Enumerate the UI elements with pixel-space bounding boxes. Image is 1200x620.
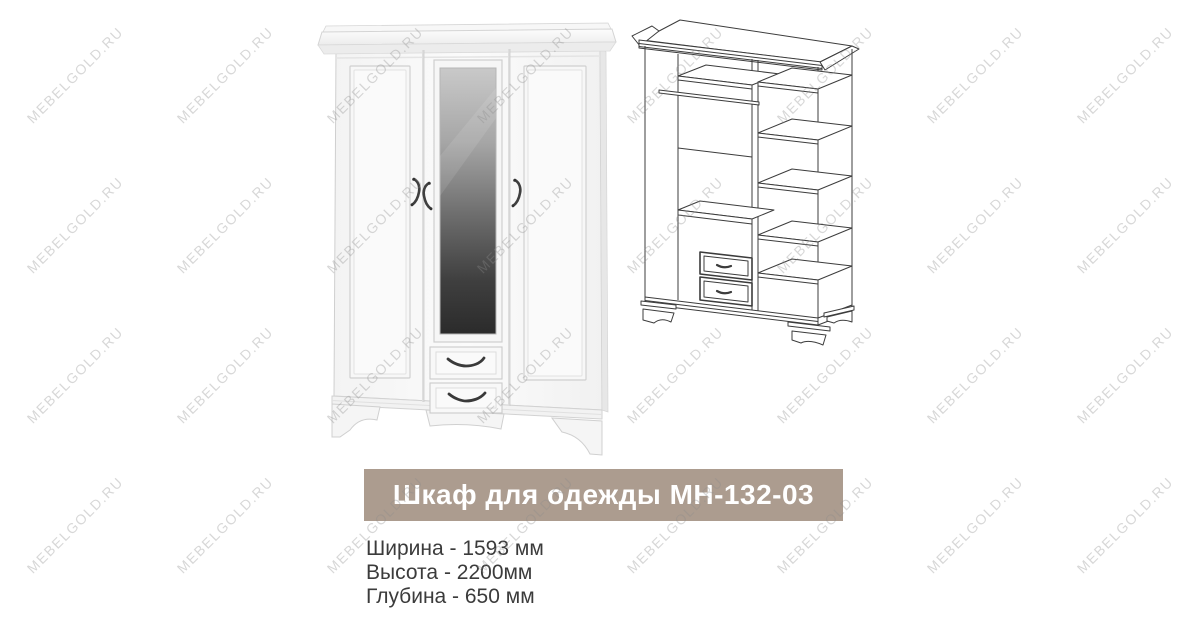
photo-drawer-top: [430, 347, 502, 379]
wardrobe-interior-diagram: [628, 0, 913, 355]
spec-depth: Глубина - 650 мм: [366, 585, 544, 609]
watermark-text: MEBELGOLD.RU: [1074, 474, 1177, 577]
watermark-text: MEBELGOLD.RU: [924, 324, 1027, 427]
product-title-banner: Шкаф для одежды МН-132-03: [364, 469, 843, 521]
product-specs: Ширина - 1593 мм Высота - 2200мм Глубина…: [366, 537, 544, 609]
watermark-text: MEBELGOLD.RU: [1074, 24, 1177, 127]
watermark-text: MEBELGOLD.RU: [24, 474, 127, 577]
watermark-text: MEBELGOLD.RU: [24, 24, 127, 127]
product-title: Шкаф для одежды МН-132-03: [393, 479, 814, 511]
watermark-text: MEBELGOLD.RU: [924, 174, 1027, 277]
photo-drawer-bottom: [430, 383, 502, 413]
watermark-text: MEBELGOLD.RU: [174, 474, 277, 577]
spec-width: Ширина - 1593 мм: [366, 537, 544, 561]
watermark-text: MEBELGOLD.RU: [24, 174, 127, 277]
product-image-canvas: Шкаф для одежды МН-132-03 Ширина - 1593 …: [0, 0, 1200, 620]
mirror-door: [424, 60, 502, 413]
wardrobe-interior-diagram-container: [628, 0, 913, 355]
watermark-text: MEBELGOLD.RU: [1074, 174, 1177, 277]
diagram-cornice: [632, 20, 859, 70]
watermark-text: MEBELGOLD.RU: [174, 24, 277, 127]
watermark-text: MEBELGOLD.RU: [924, 474, 1027, 577]
diagram-drawers: [700, 252, 752, 306]
diagram-right-shelves: [758, 68, 852, 284]
diagram-left-compartment: [659, 65, 780, 224]
watermark-text: MEBELGOLD.RU: [174, 324, 277, 427]
watermark-text: MEBELGOLD.RU: [1074, 324, 1177, 427]
wardrobe-photo: [296, 6, 638, 468]
watermark-text: MEBELGOLD.RU: [174, 174, 277, 277]
wardrobe-photo-container: [296, 6, 638, 468]
left-door: [350, 66, 419, 378]
hanging-rail: [659, 90, 759, 105]
spec-height: Высота - 2200мм: [366, 561, 544, 585]
watermark-text: MEBELGOLD.RU: [24, 324, 127, 427]
watermark-text: MEBELGOLD.RU: [924, 24, 1027, 127]
